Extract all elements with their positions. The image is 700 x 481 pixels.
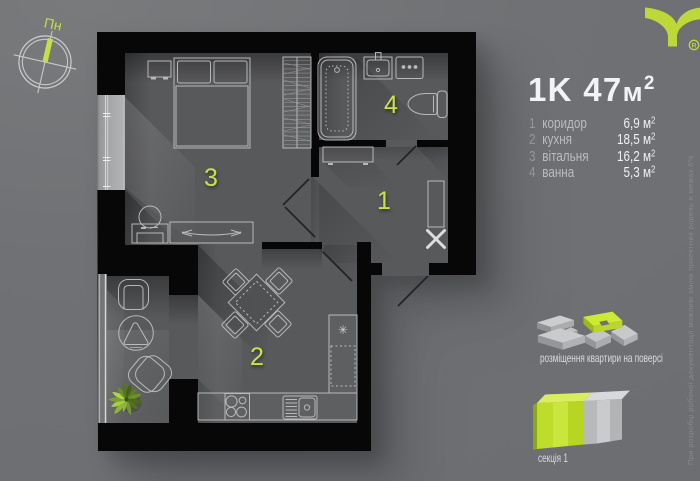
svg-text:✳: ✳ (338, 323, 348, 337)
svg-text:Пн: Пн (43, 14, 64, 33)
svg-text:R: R (692, 43, 697, 50)
